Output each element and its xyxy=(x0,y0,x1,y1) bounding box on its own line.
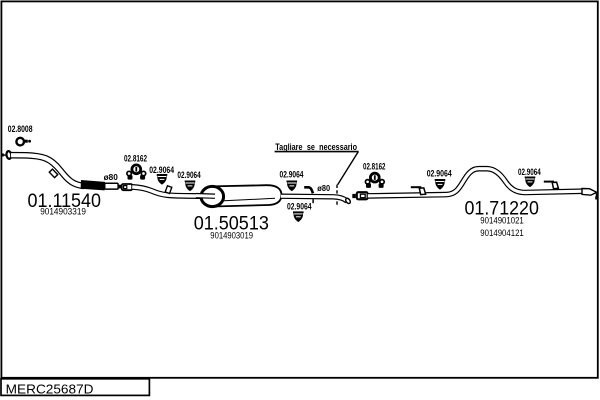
svg-text:9014901021: 9014901021 xyxy=(480,215,524,225)
svg-text:ø80: ø80 xyxy=(317,184,330,193)
svg-text:02.9064: 02.9064 xyxy=(177,170,201,181)
svg-text:ø80: ø80 xyxy=(104,173,119,182)
svg-text:02.8008: 02.8008 xyxy=(8,124,33,135)
svg-text:02.9064: 02.9064 xyxy=(518,167,541,178)
svg-text:02.8162: 02.8162 xyxy=(363,161,386,172)
svg-text:02.8162: 02.8162 xyxy=(124,154,147,165)
svg-text:02.9064: 02.9064 xyxy=(280,170,304,181)
svg-text:9014903019: 9014903019 xyxy=(210,231,253,241)
svg-text:9014903319: 9014903319 xyxy=(40,207,86,217)
svg-text:9014904121: 9014904121 xyxy=(480,228,524,238)
svg-text:02.9064: 02.9064 xyxy=(287,202,312,213)
svg-text:02.9064: 02.9064 xyxy=(427,169,453,180)
svg-text:MERC25687D: MERC25687D xyxy=(6,381,94,396)
